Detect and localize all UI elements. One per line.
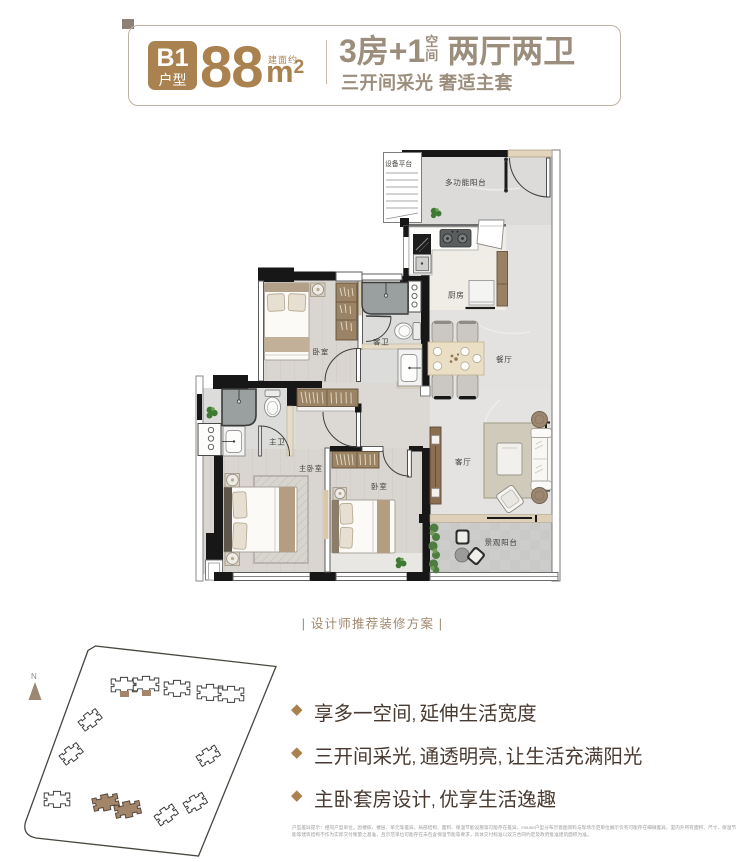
svg-text:客厅: 客厅: [455, 457, 472, 467]
svg-text:设备平台: 设备平台: [385, 159, 412, 168]
svg-text:厨房: 厨房: [448, 290, 465, 300]
svg-text:客卫: 客卫: [373, 337, 390, 347]
svg-text:多功能阳台: 多功能阳台: [445, 177, 486, 187]
svg-text:餐厅: 餐厅: [496, 355, 513, 364]
svg-text:主卫: 主卫: [269, 437, 286, 447]
svg-text:景观阳台: 景观阳台: [485, 537, 518, 547]
svg-text:主卧室: 主卧室: [299, 464, 323, 473]
svg-text:N: N: [31, 672, 37, 681]
svg-text:卧室: 卧室: [313, 347, 330, 357]
svg-text:卧室: 卧室: [371, 481, 388, 491]
